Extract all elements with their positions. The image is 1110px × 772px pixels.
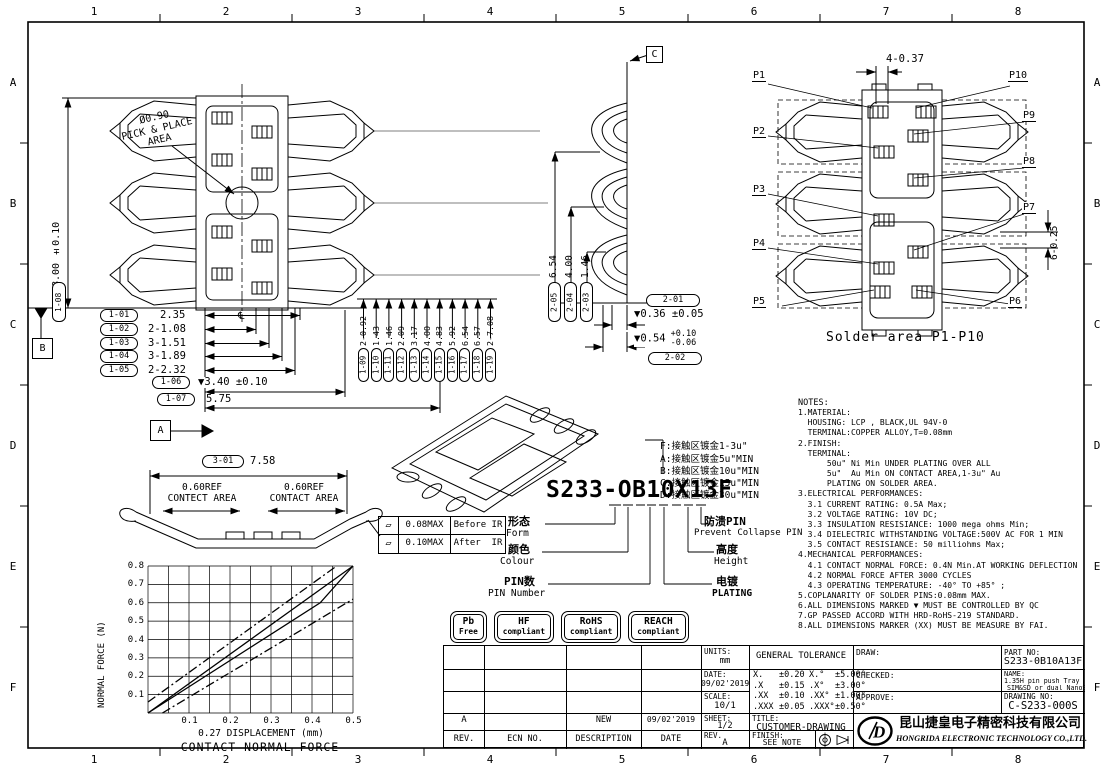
compliance-badge: HF compliant <box>494 611 554 643</box>
badge-line2: Free <box>459 628 478 637</box>
bottom-callout: 5.92 1-16 <box>446 300 459 382</box>
tol-symbol: .XXX <box>753 702 779 713</box>
zone-label: 4 <box>424 753 556 766</box>
zone-label: C <box>1090 264 1104 385</box>
company-logo-letter: D <box>872 723 885 742</box>
zone-label: 1 <box>28 5 160 18</box>
note-line: 6.ALL DIMENSIONS MARKED ▼ MUST BE CONTRO… <box>798 601 1088 611</box>
revision-rev-value: A <box>444 716 484 726</box>
dim-1-02: 2-1.08 <box>148 324 186 335</box>
tol-angle-value: ±0.50° <box>835 702 855 713</box>
dim-2-02: ▼0.54+0.10-0.06 <box>634 330 696 347</box>
zone-label: C <box>6 264 20 385</box>
section-c-box: C <box>646 46 663 63</box>
bottom-callout: 6.57 1-18 <box>471 300 484 382</box>
projection-symbol-icon <box>817 732 851 748</box>
zone-labels-top: 12345678 <box>28 5 1084 18</box>
tol-angle-value: ±1.00° <box>835 691 855 702</box>
pin-label-p6: P6 <box>1008 296 1022 308</box>
flatness-stage: After IR <box>451 535 505 553</box>
flatness-stage: Before IR <box>451 517 505 534</box>
bottom-callout: 2-7.08 1-19 <box>484 300 497 382</box>
callout-1-04: 1-04 <box>100 350 138 363</box>
label-plating-cn: 电镀 <box>716 576 738 587</box>
note-line: 3.2 VOLTAGE RATING: 10V DC; <box>798 510 1088 520</box>
date-label: DATE: <box>704 671 727 679</box>
dim-value: 2-7.08 <box>486 300 494 346</box>
tol-symbol: .XX <box>753 691 779 702</box>
zone-label: 5 <box>556 5 688 18</box>
zone-label: F <box>6 627 20 748</box>
zone-label: 8 <box>952 753 1084 766</box>
projection-symbols <box>817 732 851 748</box>
x-tick-label: 0.3 <box>251 716 292 726</box>
bottom-callout: 2-0.92 1-09 <box>357 300 370 382</box>
zone-labels-left: ABCDEF <box>6 22 20 748</box>
chart-y-ticks: 0.80.70.60.50.40.30.20.1 <box>118 557 144 704</box>
callout-pill: 2-03 <box>580 282 593 322</box>
dim-2-02-value: ▼0.54 <box>634 333 666 345</box>
x-tick-label: 0.4 <box>292 716 333 726</box>
engineering-drawing-sheet: { "zones": {"cols":["1","2","3","4","5",… <box>0 0 1110 772</box>
draw-label: DRAW: <box>856 649 880 658</box>
tol-angle-value: ±3.00° <box>835 681 855 692</box>
pin-label-p3: P3 <box>752 184 766 196</box>
checked-label: CHECKED: <box>856 672 895 681</box>
tol-symbol: .X <box>753 681 779 692</box>
dim-1-07: 5.75 <box>206 394 231 405</box>
bottom-callout: 6.54 1-17 <box>459 300 472 382</box>
dim-solder-pitch: 4-0.37 <box>886 54 924 65</box>
company-logo: D <box>856 716 894 746</box>
note-line: 4.MECHANICAL PERFORMANCES: <box>798 550 1088 560</box>
pin-label-p8: P8 <box>1022 156 1036 168</box>
zone-label: 1 <box>28 753 160 766</box>
tol-value: ±0.15 <box>779 681 809 692</box>
revision-header-ecn: ECN NO. <box>484 735 566 744</box>
zone-label: 7 <box>820 753 952 766</box>
callout-pill: 1-09 <box>358 348 369 382</box>
callout-1-03: 1-03 <box>100 337 138 350</box>
y-tick-label: 0.6 <box>118 594 144 612</box>
x-tick-label: 0.1 <box>169 716 210 726</box>
dim-value: 3.17 <box>410 300 418 346</box>
plating-option: F:接触区镀金1-3u" <box>660 441 759 453</box>
zone-label: 6 <box>688 753 820 766</box>
y-tick-label: 0.7 <box>118 575 144 593</box>
dim-overall-height: ▼8.00 ±0.10 <box>52 128 62 298</box>
dim-2-02-minus: -0.06 <box>671 339 697 348</box>
bottom-callout: 4.83 1-15 <box>433 300 446 382</box>
badge-line2: compliant <box>503 628 545 637</box>
rev-value: A <box>701 739 749 749</box>
company-logo-icon: D <box>856 716 894 746</box>
chart-x-axis-label: 0.27 DISPLACEMENT (mm) <box>168 728 354 739</box>
note-line: 4.1 CONTACT NORMAL FORCE: 0.4N Min.AT WO… <box>798 561 1088 571</box>
zone-label: 3 <box>292 753 424 766</box>
zone-label: 2 <box>160 753 292 766</box>
dim-value: 4.00 <box>423 300 431 346</box>
y-tick-label: 0.3 <box>118 649 144 667</box>
label-height-cn: 高度 <box>716 544 738 555</box>
compliance-badge: REACH compliant <box>628 611 688 643</box>
dim-1-06: ▼3.40 ±0.10 <box>198 377 268 388</box>
section-callout: 6.54 2-05 <box>546 228 562 322</box>
tolerance-title: GENERAL TOLERANCE <box>749 652 853 662</box>
revision-header-rev: REV. <box>444 735 484 744</box>
callout-1-02: 1-02 <box>100 323 138 336</box>
callout-pill: 1-11 <box>383 348 394 382</box>
contact-area-left-label: CONTECT AREA <box>158 493 246 504</box>
note-line: TERMINAL:COPPER ALLOY,T=0.08mm <box>798 428 1088 438</box>
dim-value: 6.54 <box>549 228 559 278</box>
callout-1-05: 1-05 <box>100 364 138 377</box>
dim-1-05: 2-2.32 <box>148 365 186 376</box>
dim-value: 6.57 <box>473 300 481 346</box>
x-tick-label: 0.2 <box>210 716 251 726</box>
tol-value: ±0.05 <box>779 702 809 713</box>
note-line: 2.FINISH: <box>798 439 1088 449</box>
note-line: PLATING ON SOLDER AREA. <box>798 479 1088 489</box>
scale-label: SCALE: <box>704 693 731 701</box>
zone-label: 8 <box>952 5 1084 18</box>
badge-line2: compliant <box>570 628 612 637</box>
chart-y-axis-label: NORMAL FORCE (N) <box>98 578 107 708</box>
zone-label: B <box>6 143 20 264</box>
approve-label: APPROVE: <box>856 694 895 703</box>
pin-label-p4: P4 <box>752 238 766 250</box>
callout-2-01: 2-01 <box>646 294 700 307</box>
revision-date-value: 09/02'2019 <box>641 716 701 725</box>
callout-pill: 1-12 <box>396 348 407 382</box>
note-line: 4.2 NORMAL FORCE AFTER 3000 CYCLES <box>798 571 1088 581</box>
notes-block: NOTES: 1.MATERIAL: HOUSING: LCP , BLACK,… <box>798 398 1088 632</box>
callout-pill: 1-15 <box>434 348 445 382</box>
pin-label-p1: P1 <box>752 70 766 82</box>
zone-label: 4 <box>424 5 556 18</box>
notes-lines: 1.MATERIAL: HOUSING: LCP , BLACK,UL 94V-… <box>798 408 1088 631</box>
section-callout: 1.46 2-03 <box>578 228 594 322</box>
company-name-en: HONGRIDA ELECTRONIC TECHNOLOGY CO.,LTD. <box>896 734 1084 743</box>
callout-pill: 1-17 <box>459 348 470 382</box>
dim-value: 6.54 <box>461 300 469 346</box>
bottom-callout: 3.17 1-13 <box>408 300 421 382</box>
part-number: S233-OB10X13F <box>546 477 733 503</box>
pin-label-p5: P5 <box>752 296 766 308</box>
tolerance-row: .X ±0.15 .X° ±3.00° <box>753 681 855 692</box>
y-tick-label: 0.1 <box>118 686 144 704</box>
y-tick-label: 0.5 <box>118 612 144 630</box>
dim-value: 1.43 <box>372 300 380 346</box>
dim-1-01: 2.35 <box>160 310 185 321</box>
label-pin-cn: PIN数 <box>504 576 535 587</box>
callout-pill: 2-04 <box>564 282 577 322</box>
note-line: 3.1 CURRENT RATING: 0.5A Max; <box>798 500 1088 510</box>
section-dim-stack: 6.54 2-05 4.00 2-04 1.46 2-03 <box>546 228 594 322</box>
y-tick-label: 0.2 <box>118 667 144 685</box>
zone-labels-right: ABCDEF <box>1090 22 1104 748</box>
tol-value: ±0.20 <box>779 670 809 681</box>
zone-labels-bottom: 12345678 <box>28 753 1084 766</box>
note-line: 8.ALL DIMENSIONS MARKER (XX) MUST BE MEA… <box>798 621 1088 631</box>
pin-label-p7: P7 <box>1022 202 1036 214</box>
dim-1-03: 3-1.51 <box>148 338 186 349</box>
pin-label-p2: P2 <box>752 126 766 138</box>
tol-angle-symbol: .XX° <box>809 691 835 702</box>
dim-1-04: 3-1.89 <box>148 351 186 362</box>
note-line: 3.ELECTRICAL PERFORMANCES: <box>798 489 1088 499</box>
note-line: 1.MATERIAL: <box>798 408 1088 418</box>
zone-label: D <box>6 385 20 506</box>
dim-3-01: 7.58 <box>250 456 275 467</box>
flatness-value: 0.08MAX <box>399 517 451 534</box>
scale-value: 10/1 <box>701 702 749 712</box>
compliance-badge: Pb Free <box>450 611 487 643</box>
tol-angle-symbol: X.° <box>809 670 835 681</box>
flatness-symbol: ▱ <box>379 517 399 534</box>
solder-caption: Solder area P1-P10 <box>826 330 985 345</box>
flatness-value: 0.10MAX <box>399 535 451 553</box>
zone-label: E <box>6 506 20 627</box>
callout-pill: 1-16 <box>447 348 458 382</box>
revision-header-desc: DESCRIPTION <box>566 735 641 744</box>
tolerance-row: .XX ±0.10 .XX° ±1.00° <box>753 691 855 702</box>
tolerance-row: X. ±0.20 X.° ±5.00° <box>753 670 855 681</box>
x-tick-label: 0.5 <box>333 716 374 726</box>
zone-label: B <box>1090 143 1104 264</box>
note-line: HOUSING: LCP , BLACK,UL 94V-0 <box>798 418 1088 428</box>
datum-a-box: A <box>150 420 171 441</box>
pin-label-p10: P10 <box>1008 70 1028 82</box>
zone-label: 3 <box>292 5 424 18</box>
contact-area-right-ref: 0.60REF <box>260 482 348 493</box>
callout-1-07: 1-07 <box>157 393 195 406</box>
label-plating-en: PLATING <box>712 589 752 599</box>
callout-3-01: 3-01 <box>202 455 244 468</box>
label-pin-en: PIN Number <box>488 589 545 599</box>
label-prevent-cn: 防溃PIN <box>704 516 746 527</box>
tol-angle-value: ±5.00° <box>835 670 855 681</box>
centerline-symbol: ℄ <box>238 311 244 322</box>
flatness-symbol: ▱ <box>379 535 399 553</box>
label-form-en: Form <box>506 529 529 539</box>
bottom-callout: 1.46 1-11 <box>382 300 395 382</box>
chart-x-ticks: 0.10.20.30.40.5 <box>169 716 374 726</box>
tol-angle-symbol: .XXX° <box>809 702 835 713</box>
callout-pill: 1-19 <box>485 348 496 382</box>
compliance-badge: RoHS compliant <box>561 611 621 643</box>
callout-pill: 2-05 <box>548 282 561 322</box>
title-block: A NEW 09/02'2019 REV. ECN NO. DESCRIPTIO… <box>443 645 1084 748</box>
units-label: UNITS: <box>704 648 731 656</box>
callout-1-01: 1-01 <box>100 309 138 322</box>
pin-label-p9: P9 <box>1022 110 1036 122</box>
compliance-badges: Pb Free HF compliant RoHS compliant REAC… <box>450 611 689 643</box>
datum-b-box: B <box>32 338 53 359</box>
label-form-cn: 形态 <box>508 516 530 527</box>
tol-angle-symbol: .X° <box>809 681 835 692</box>
label-height-en: Height <box>714 557 748 567</box>
zone-label: E <box>1090 506 1104 627</box>
revision-desc-value: NEW <box>566 716 641 725</box>
chart-title: CONTACT NORMAL FORCE <box>150 740 370 754</box>
zone-label: 7 <box>820 5 952 18</box>
dim-solder-width: 6-0.25 <box>1050 206 1060 260</box>
contact-area-left: 0.60REF CONTECT AREA <box>158 482 246 504</box>
dim-2-01: ▼0.36 ±0.05 <box>634 309 704 320</box>
label-colour-cn: 颜色 <box>508 544 530 555</box>
note-line: 5.COPLANARITY OF SOLDER PINS:0.08mm MAX. <box>798 591 1088 601</box>
callout-1-06: 1-06 <box>152 376 190 389</box>
company-name-cn: 昆山捷皇电子精密科技有限公司 <box>896 717 1084 731</box>
contact-area-right: 0.60REF CONTACT AREA <box>260 482 348 504</box>
y-tick-label: 0.4 <box>118 631 144 649</box>
units-value: mm <box>701 657 749 667</box>
dim-value: 2.09 <box>397 300 405 346</box>
dim-value: 4.83 <box>435 300 443 346</box>
tol-value: ±0.10 <box>779 691 809 702</box>
zone-label: 2 <box>160 5 292 18</box>
callout-pill: 1-13 <box>409 348 420 382</box>
section-callout: 4.00 2-04 <box>562 228 578 322</box>
drawing-no-value: C-S233-000S <box>1001 701 1085 713</box>
plating-option: A:接触区镀金5u"MIN <box>660 454 759 466</box>
note-line: TERMINAL: <box>798 449 1088 459</box>
notes-title: NOTES: <box>798 398 1088 408</box>
callout-1-08: 1-08 <box>52 282 66 322</box>
y-tick-label: 0.8 <box>118 557 144 575</box>
callout-pill: 1-14 <box>421 348 432 382</box>
sheet-value: 1/2 <box>701 722 749 731</box>
zone-label: A <box>1090 22 1104 143</box>
part-no-value: S233-0B10A13F <box>1001 656 1085 667</box>
bottom-callout: 2.09 1-12 <box>395 300 408 382</box>
tolerance-row: .XXX ±0.05 .XXX° ±0.50° <box>753 702 855 713</box>
note-line: 7.GP PASSED ACCORD WITH HRD-RoHS-219 STA… <box>798 611 1088 621</box>
note-line: 50u" Ni Min UNDER PLATING OVER ALL <box>798 459 1088 469</box>
note-line: 3.4 DIELECTRIC WITHSTANDING VOLTAGE:500V… <box>798 530 1088 540</box>
contact-area-right-label: CONTACT AREA <box>260 493 348 504</box>
zone-label: 5 <box>556 753 688 766</box>
note-line: 4.3 OPERATING TEMPERATURE: -40° TO +85° … <box>798 581 1088 591</box>
dim-value: 1.46 <box>581 228 591 278</box>
dim-value: 1.46 <box>385 300 393 346</box>
contact-area-left-ref: 0.60REF <box>158 482 246 493</box>
zone-label: D <box>1090 385 1104 506</box>
dim-value: 4.00 <box>565 228 575 278</box>
callout-2-02: 2-02 <box>648 352 702 365</box>
finish-value: SEE NOTE <box>749 739 815 748</box>
tolerance-rows: X. ±0.20 X.° ±5.00° .X ±0.15 .X° ±3.00° … <box>753 670 855 712</box>
label-colour-en: Colour <box>500 557 534 567</box>
zone-label: 6 <box>688 5 820 18</box>
dim-value: 2-0.92 <box>359 300 367 346</box>
revision-header-date: DATE <box>641 735 701 744</box>
bottom-callout: 4.00 1-14 <box>420 300 433 382</box>
label-prevent-en: Prevent Collapse PIN <box>694 529 802 538</box>
zone-label: F <box>1090 627 1104 748</box>
badge-line2: compliant <box>637 628 679 637</box>
tol-symbol: X. <box>753 670 779 681</box>
callout-pill: 1-18 <box>472 348 483 382</box>
note-line: 5u" Au Min ON CONTACT AREA,1-3u" Au <box>798 469 1088 479</box>
dim-value: 5.92 <box>448 300 456 346</box>
note-line: 3.3 INSULATION RESISIANCE: 1000 mega ohm… <box>798 520 1088 530</box>
zone-label: A <box>6 22 20 143</box>
callout-pill: 1-10 <box>371 348 382 382</box>
bottom-callouts: 2-0.92 1-09 1.43 1-10 1.46 1-11 2.09 1-1… <box>357 300 497 382</box>
date-value: 09/02'2019 <box>701 680 749 689</box>
flatness-table: ▱ 0.08MAX Before IR ▱ 0.10MAX After IR <box>378 516 506 554</box>
bottom-callout: 1.43 1-10 <box>370 300 383 382</box>
note-line: 3.5 CONTACT RESISIANCE: 50 milliohms Max… <box>798 540 1088 550</box>
